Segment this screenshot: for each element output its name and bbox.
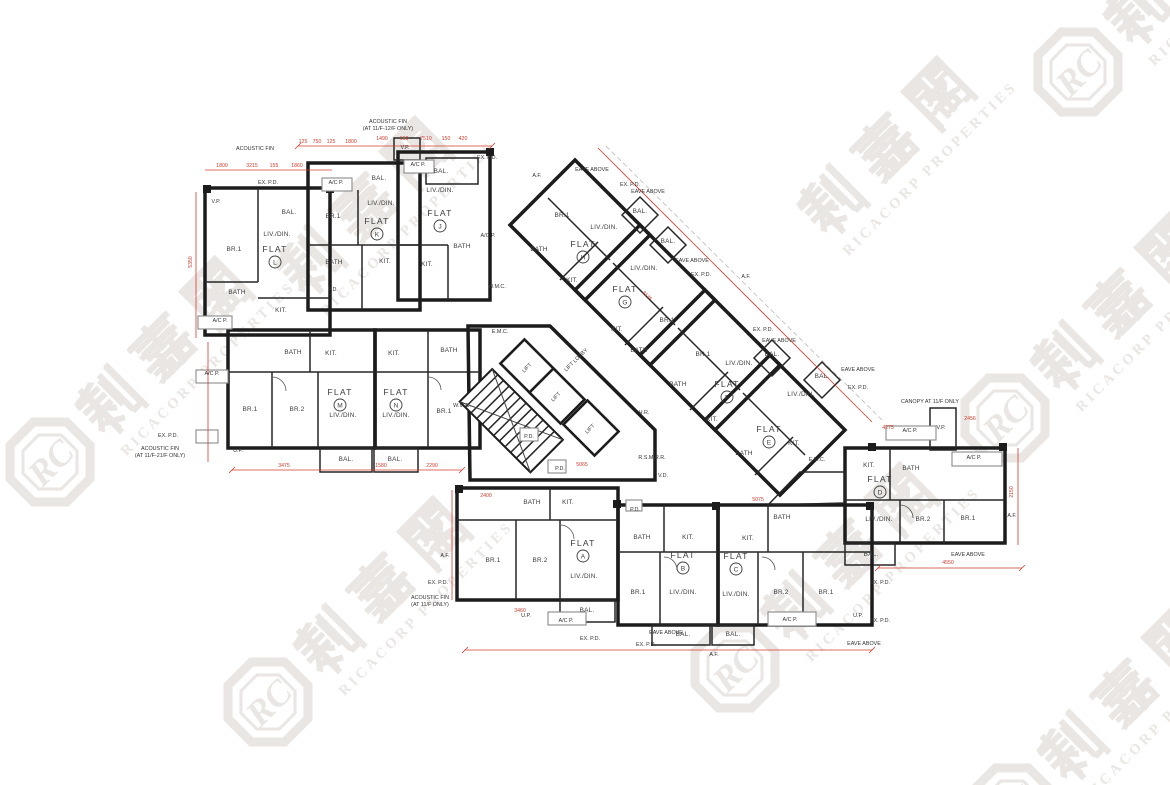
pillar [712,502,720,510]
room-label: BR.1 [659,317,674,324]
room-label: BR.1 [242,406,257,413]
room-label: LIV./DIN. [263,231,290,238]
annotation-label: A/C P. [205,371,220,377]
room-label: LIV./DIN. [570,573,597,580]
annotation-label: CANOPY AT 11/F ONLY [901,399,959,405]
room-label: KIT. [275,307,287,314]
dimension-label: 1580 [375,463,387,469]
flat-letter: D [878,489,883,496]
annotation-label: (AT 11/F-21/F ONLY) [135,453,185,459]
annotation-label: EX. P.D. [158,433,178,439]
room-label: KIT. [325,350,337,357]
room-label: BATH [902,465,920,472]
room-label: KIT. [388,350,400,357]
room-label: BR.1 [695,351,710,358]
annotation-label: A/C P. [967,455,982,461]
annotation-label: V.P. [212,199,221,205]
room-label: BAL. [765,351,780,358]
dimension-label: 125 [327,139,336,145]
room-label: BR.1 [960,515,975,522]
room-label: BAL. [864,551,879,558]
annotation-label: U.P. [233,448,243,454]
room-label: BAL. [339,456,354,463]
room-label: BR.1 [325,213,340,220]
annotation-label: V.P. [401,145,410,151]
flat-letter: A [581,553,586,560]
room-label: BR.1 [485,557,500,564]
dimension-label: 3475 [278,463,290,469]
annotation-label: A.F. [709,652,718,658]
room-label: BAL. [372,175,387,182]
dimension-label: 4550 [942,560,954,566]
annotation-label: EX. P.D. [636,642,656,648]
flat-H-labels: FLATHBR.1LIV./DIN.BAL.BATHKIT. [530,208,647,284]
annotation-label: A.F. [440,553,449,559]
dimension-label: 125 [299,139,308,145]
dimension-label: 5350 [188,256,194,268]
annotation-label: EX. P.D. [620,182,640,188]
annotation-label: E.M.C. [809,457,825,463]
room-label: BATH [633,534,651,541]
flat-letter: H [581,254,586,261]
annotation-label: P.D. [555,466,565,472]
room-label: BATH [669,381,687,388]
flat-letter: K [375,231,380,238]
flat-letter: E [767,439,772,446]
pillar [203,185,211,193]
room-label: LIV./DIN. [787,391,814,398]
watermark: RC利嘉閣RICACORP PROPERTIES [955,569,1170,785]
watermark: RC利嘉閣RICACORP PROPERTIES [0,223,299,528]
annotation-label: (AT 11/F ONLY) [411,602,449,608]
annotation-label: V.D. [658,473,668,479]
flat-label: FLAT [867,474,892,484]
dimension-label: 2290 [426,463,438,469]
flat-letter: L [273,259,277,266]
dimension-label: 1860 [291,163,303,169]
room-label: LIV./DIN. [725,360,752,367]
annotation-label: EAVE ABOVE [847,641,881,647]
pillar [455,485,463,493]
room-label: BATH [523,499,541,506]
annotation-label: EX. P.D. [477,155,497,161]
room-label: BR.1 [436,408,451,415]
annotation-label: EAVE ABOVE [762,338,796,344]
flat-label: FLAT [570,239,595,249]
annotation-label: EX. P.D. [691,272,711,278]
dimension-label: 7510 [420,136,432,142]
flat-label: FLAT [756,424,781,434]
annotation-label: EX. P.D. [870,618,890,624]
watermark-rc-monogram: RC [1047,41,1111,105]
room-label: BATH [630,347,648,354]
room-label: BAL. [388,456,403,463]
annotation-label: R.S.M.R.R. [638,455,665,461]
room-label: BATH [440,347,458,354]
dimension-label: 150 [400,136,409,142]
dimension-label: 155 [270,163,279,169]
watermark: RC利嘉閣RICACORP PROPERTIES [1021,0,1170,138]
flat-letter: G [622,299,627,306]
flat-label: FLAT [612,284,637,294]
floor-plan-page: 利嘉閣RICACORP PROPERTIES利嘉閣RICACORP PROPER… [0,0,1170,785]
annotation-label: A.F. [741,274,750,280]
annotation-label: W.M.C. [453,403,471,409]
annotation-label: P.D. [524,434,534,440]
annotation-label: EAVE ABOVE [575,167,609,173]
room-label: KIT. [421,261,433,268]
room-label: LIV./DIN. [426,187,453,194]
dimension-label: 3460 [514,608,526,614]
dimension-label: 750 [313,139,322,145]
annotation-label: EX. P.D. [848,385,868,391]
room-label: LIV./DIN. [590,224,617,231]
room-label: BAL. [282,209,297,216]
flat-letter: N [394,402,399,409]
dimension-label: 150 [442,136,451,142]
door-swing [762,557,775,570]
room-label: KIT. [611,326,623,333]
watermark: RC利嘉閣RICACORP PROPERTIES [678,429,983,734]
room-label: LIV./DIN. [630,265,657,272]
watermark-rc-monogram: RC [704,637,768,701]
room-label: BATH [530,246,548,253]
watermark: RC利嘉閣RICACORP PROPERTIES [211,463,516,768]
flat-label: FLAT [262,244,287,254]
annotation-label: A/C P. [783,617,798,623]
floor-plan-drawing: 利嘉閣RICACORP PROPERTIES利嘉閣RICACORP PROPER… [0,0,1170,785]
dimension-label: 3215 [246,163,258,169]
room-label: BR.1 [226,246,241,253]
room-label: KIT. [742,535,754,542]
room-label: BAL. [815,373,830,380]
room-label: KIT. [788,440,800,447]
room-label: BR.1 [554,212,569,219]
room-label: LIV./DIN. [865,516,892,523]
watermark: 利嘉閣RICACORP PROPERTIES [788,28,1021,261]
room-label: LIV./DIN. [722,591,749,598]
annotation-label: U.P. [853,613,863,619]
flat-B-outline [618,505,718,625]
annotation-label: (AT 11/F-12/F ONLY) [363,126,413,132]
annotation-label: W.M.C. [488,284,506,290]
flat-label: FLAT [723,551,748,561]
flat-letter: F [725,394,729,401]
room-label: BR.2 [532,557,547,564]
room-label: BATH [284,349,302,356]
room-label: BAL. [726,631,741,638]
room-label: BR.2 [915,516,930,523]
annotation-label: ACOUSTIC FIN [369,119,407,125]
flat-N-labels: FLATNKIT.BATHLIV./DIN.BR.1BAL. [382,347,457,463]
annotation-label: EAVE ABOVE [649,630,683,636]
pillar [868,443,876,451]
watermark-rc-monogram: RC [237,671,301,735]
room-label: LIV./DIN. [669,589,696,596]
dimension-label: 2456 [964,416,976,422]
flat-label: FLAT [364,216,389,226]
annotation-label: A/C P. [411,162,426,168]
door-swing [428,377,441,390]
room-label: BATH [735,450,753,457]
dimension-label: 1800 [345,139,357,145]
room-label: KIT. [566,277,578,284]
annotation-label: EX. P.D. [428,580,448,586]
annotation-label: ACOUSTIC FIN [236,146,274,152]
room-label: KIT. [682,534,694,541]
pillar [866,502,874,510]
pillar [999,443,1007,451]
annotation-label: EAVE ABOVE [841,367,875,373]
annotation-label: A/C P. [903,428,918,434]
room-label: KIT. [863,462,875,469]
annotation-label: H.R. [639,410,650,416]
room-label: BAL. [661,238,676,245]
annotation-label: P.D. [328,287,338,293]
annotation-label: ACOUSTIC FIN [141,446,179,452]
flat-A-labels: FLATABATHKIT.BR.1BR.2LIV./DIN.BAL. [485,499,597,614]
flat-M-labels: FLATMBATHKIT.BR.1BR.2LIV./DIN.BAL. [242,349,356,463]
dimension-label: 5065 [576,462,588,468]
flat-letter: M [337,402,343,409]
annotation-label: A/C P. [213,318,228,324]
pillar [613,500,621,508]
flat-letter: C [734,566,739,573]
watermark-layer: 利嘉閣RICACORP PROPERTIES利嘉閣RICACORP PROPER… [0,0,1170,785]
dimension-label: 2150 [1009,486,1015,498]
room-label: BR.2 [773,589,788,596]
room-label: LIV./DIN. [329,412,356,419]
annotation-label: EAVE ABOVE [675,258,709,264]
room-label: BR.1 [630,589,645,596]
room-label: BATH [228,289,246,296]
annotation-label: A/C P. [559,618,574,624]
room-label: BAL. [633,208,648,215]
ex-pd-box [196,430,218,443]
room-label: BATH [773,514,791,521]
flat-M-outline [228,330,375,448]
annotation-label: A/C P. [329,180,344,186]
room-label: LIV./DIN. [382,412,409,419]
dimension-label: 420 [459,136,468,142]
room-label: BR.2 [289,406,304,413]
room-label: BATH [325,259,343,266]
flat-label: FLAT [714,379,739,389]
room-label: BATH [453,243,471,250]
annotation-label: A.F. [1007,513,1016,519]
door-swing [560,525,574,539]
annotation-label: A/C P. [481,233,496,239]
watermark-rc-monogram: RC [19,431,83,495]
room-label: BAL. [580,607,595,614]
dimension-label: 5075 [752,497,764,503]
dimension-label: 1800 [216,163,228,169]
flat-label: FLAT [670,550,695,560]
room-label: KIT. [562,499,574,506]
flat-label: FLAT [570,538,595,548]
room-label: KIT. [379,258,391,265]
annotation-label: ACOUSTIC FIN [411,595,449,601]
dimension-label: 4275 [882,425,894,431]
corridor-to-flat-D [768,472,845,505]
room-label: BAL. [434,168,449,175]
annotation-label: EX. P.D. [580,636,600,642]
door-swing [272,377,286,391]
flat-letter: B [681,565,686,572]
dimension-label: 2400 [480,493,492,499]
annotation-label: EAVE ABOVE [951,552,985,558]
room-label: KIT. [706,416,718,423]
annotation-label: EX. P.D. [870,580,890,586]
annotation-label: V.P. [937,425,946,431]
watermark: RC利嘉閣RICACORP PROPERTIES [948,179,1170,484]
flat-label: FLAT [427,208,452,218]
flat-label: FLAT [327,387,352,397]
annotation-label: EX. P.D. [258,180,278,186]
dimension-label: 1490 [376,136,388,142]
annotation-label: P.D. [630,507,640,513]
flat-E-labels: FLATELIV./DIN.BAL.KIT.BATH [735,373,829,457]
room-label: LIV./DIN. [367,200,394,207]
annotation-label: E.M.C. [492,329,508,335]
annotation-label: EAVE ABOVE [631,189,665,195]
annotation-label: A.F. [532,173,541,179]
watermark-rc-monogram: RC [974,387,1038,451]
room-label: BR.1 [818,589,833,596]
flat-letter: J [438,223,441,230]
annotation-label: EX. P.D. [753,327,773,333]
flat-label: FLAT [383,387,408,397]
